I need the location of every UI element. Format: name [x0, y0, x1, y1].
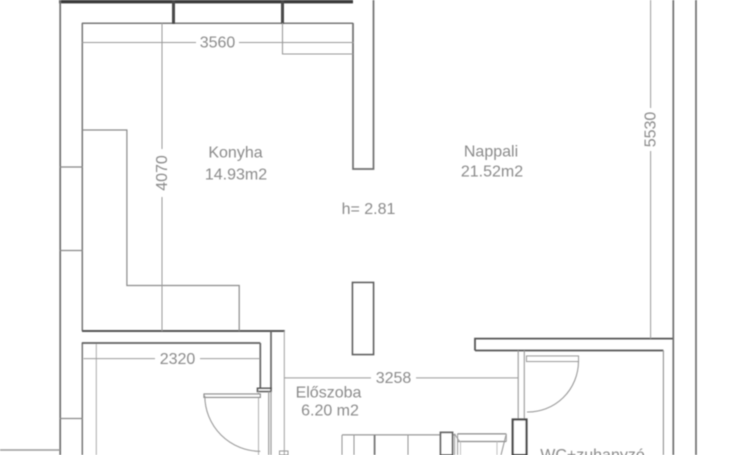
- svg-text:5530: 5530: [643, 112, 660, 148]
- svg-text:WC+zuhanyzó: WC+zuhanyzó: [540, 447, 645, 455]
- svg-text:Nappali: Nappali: [464, 144, 518, 161]
- svg-text:6.20 m2: 6.20 m2: [301, 403, 359, 420]
- svg-text:21.52m2: 21.52m2: [461, 164, 523, 181]
- svg-text:2320: 2320: [160, 351, 196, 368]
- svg-text:3560: 3560: [200, 35, 236, 52]
- svg-text:h= 2.81: h= 2.81: [342, 201, 396, 218]
- svg-text:4070: 4070: [154, 155, 171, 191]
- svg-text:Konyha: Konyha: [208, 145, 262, 162]
- svg-text:Előszoba: Előszoba: [296, 385, 362, 402]
- svg-text:3258: 3258: [376, 370, 412, 387]
- svg-text:14.93m2: 14.93m2: [205, 167, 267, 184]
